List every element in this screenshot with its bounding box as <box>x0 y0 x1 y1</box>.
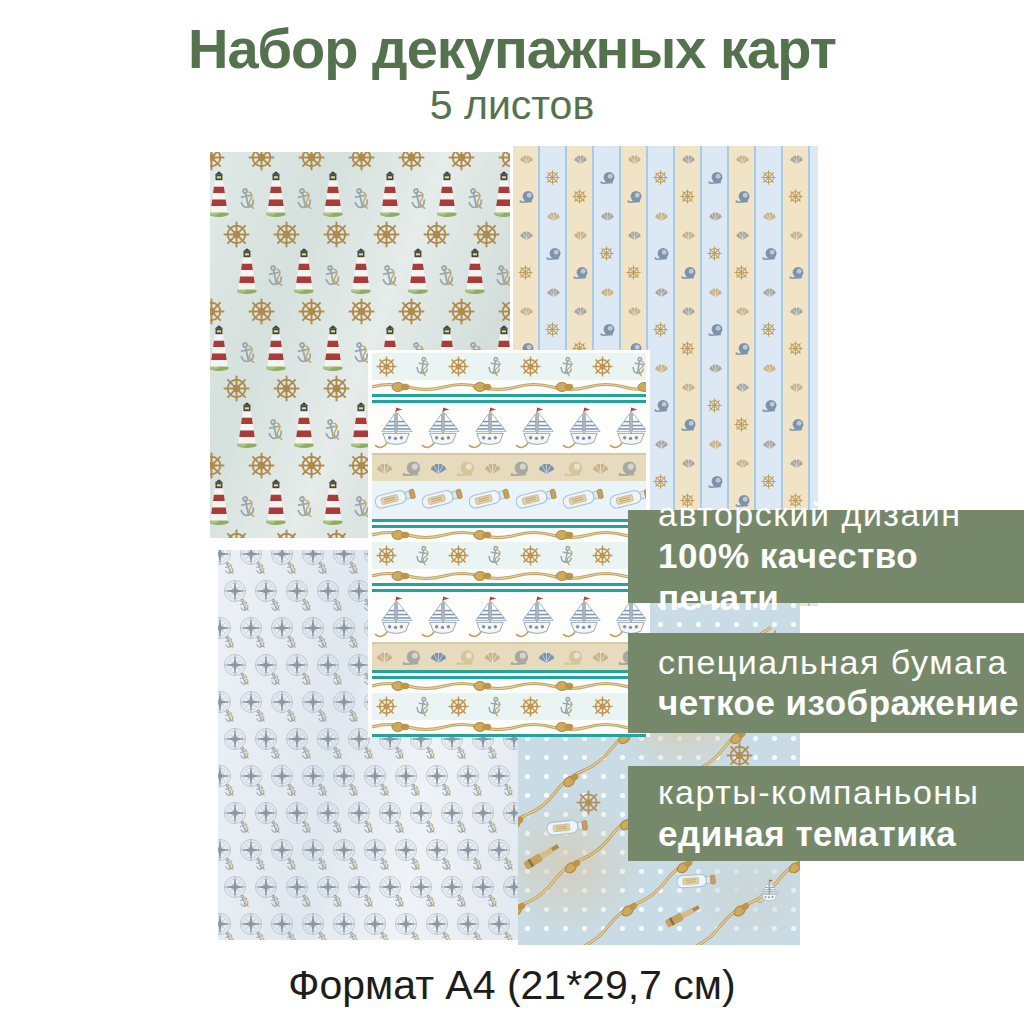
sailboat-icon <box>561 405 606 450</box>
anchor-icon <box>252 782 268 801</box>
ship-wheel-icon <box>373 221 400 248</box>
ship-wheel-icon <box>788 341 803 356</box>
ship-wheel-icon <box>273 221 300 248</box>
seashell-icon <box>761 360 778 374</box>
page-subtitle: 5 листов <box>0 82 1024 129</box>
lighthouse-icon <box>210 171 234 217</box>
anchor-icon <box>314 560 330 579</box>
anchor-icon <box>391 893 407 912</box>
ship-wheel-icon <box>761 170 776 185</box>
ship-wheel-icon <box>323 375 350 402</box>
anchor-icon <box>500 856 516 875</box>
ship-wheel-icon <box>273 529 300 538</box>
ship-wheel-icon <box>788 189 803 204</box>
pattern-band <box>372 481 646 519</box>
product-promo-image: Набор декупажных карт 5 листов <box>0 0 1024 1021</box>
bottle-icon <box>560 484 605 512</box>
lighthouse-icon <box>210 325 234 371</box>
bottle-icon <box>607 484 646 512</box>
seashell-icon <box>653 246 670 260</box>
ship-wheel-icon <box>545 322 560 337</box>
anchor-icon <box>221 856 237 875</box>
anchor-icon <box>263 262 288 292</box>
anchor-icon <box>407 782 423 801</box>
ship-wheel-icon <box>592 696 613 717</box>
anchor-icon <box>345 634 361 653</box>
anchor-icon <box>329 745 345 764</box>
anchor-icon <box>329 819 345 838</box>
seashell-icon <box>680 151 697 165</box>
ship-wheel-icon <box>726 742 753 769</box>
pattern-band <box>372 528 646 542</box>
seashell-icon <box>788 151 805 165</box>
anchor-icon <box>298 819 314 838</box>
ship-wheel-icon <box>448 696 469 717</box>
anchor-icon <box>252 560 268 579</box>
seashell-icon <box>707 474 724 488</box>
anchor-icon <box>314 782 330 801</box>
seashell-icon <box>788 417 805 431</box>
seashell-icon <box>455 648 476 665</box>
pattern-band <box>372 519 646 528</box>
pattern-band <box>372 583 646 592</box>
ship-wheel-icon <box>680 341 695 356</box>
seashell-icon <box>626 151 643 165</box>
anchor-icon <box>283 634 299 653</box>
feature-badge-companion: карты-компаньоны единая тематика <box>628 766 1024 861</box>
anchor-icon <box>556 355 577 380</box>
seashell-icon <box>734 189 751 203</box>
seashell-icon <box>572 151 589 165</box>
anchor-icon <box>406 185 431 215</box>
ship-wheel-icon <box>520 696 541 717</box>
anchor-icon <box>283 560 299 579</box>
ship-wheel-icon <box>298 452 325 479</box>
seashell-icon <box>599 208 616 222</box>
anchor-icon <box>391 819 407 838</box>
anchor-icon <box>252 708 268 727</box>
seashell-icon <box>545 246 562 260</box>
anchor-icon <box>438 782 454 801</box>
lighthouse-icon <box>318 325 348 371</box>
ship-wheel-icon <box>298 152 325 171</box>
anchor-icon <box>377 262 402 292</box>
anchor-icon <box>329 893 345 912</box>
anchor-icon <box>267 819 283 838</box>
seashell-icon <box>482 647 503 664</box>
ship-wheel-icon <box>761 474 776 489</box>
sailboat-icon <box>420 405 465 450</box>
pattern-band <box>372 542 646 569</box>
lighthouse-icon <box>289 402 319 448</box>
seashell-icon <box>518 189 535 203</box>
badge-line-bold: единая тематика <box>658 813 1024 855</box>
seashell-icon <box>401 648 422 665</box>
lighthouse-icon <box>261 325 291 371</box>
anchor-icon <box>252 634 268 653</box>
rope-icon <box>372 569 646 583</box>
seashell-icon <box>761 246 778 260</box>
anchor-icon <box>345 560 361 579</box>
ship-wheel-icon <box>376 545 397 566</box>
lighthouse-icon <box>261 171 291 217</box>
seashell-icon <box>761 208 778 222</box>
ship-wheel-icon <box>210 298 225 325</box>
badge-line: авторский дизайн <box>658 494 1024 535</box>
ship-wheel-icon <box>348 298 375 325</box>
anchor-icon <box>484 745 500 764</box>
anchor-icon <box>345 708 361 727</box>
seashell-icon <box>761 398 778 412</box>
pattern-band <box>372 734 646 737</box>
anchor-icon <box>236 671 252 690</box>
anchor-icon <box>252 856 268 875</box>
seashell-icon <box>518 303 535 317</box>
anchor-icon <box>422 819 438 838</box>
anchor-icon <box>491 262 510 292</box>
anchor-icon <box>453 893 469 912</box>
seashell-icon <box>626 189 643 203</box>
seashell-icon <box>680 455 697 469</box>
anchor-icon <box>469 856 485 875</box>
anchor-icon <box>422 893 438 912</box>
badge-line-bold: 100% качество печати <box>658 535 1024 619</box>
pattern-band <box>372 670 646 679</box>
ship-wheel-icon <box>298 298 325 325</box>
ship-wheel-icon <box>248 298 275 325</box>
ship-wheel-icon <box>734 265 749 280</box>
anchor-icon <box>412 355 433 380</box>
sailboat-icon <box>561 594 606 639</box>
anchor-icon <box>484 695 505 720</box>
ship-wheel-icon <box>473 221 500 248</box>
seashell-icon <box>482 458 503 475</box>
seashell-icon <box>572 265 589 279</box>
ship-wheel-icon <box>498 298 510 325</box>
ship-wheel-icon <box>545 170 560 185</box>
ship-wheel-icon <box>626 265 641 280</box>
anchor-icon <box>314 708 330 727</box>
anchor-icon <box>484 893 500 912</box>
ship-wheel-icon <box>398 298 425 325</box>
ship-wheel-icon <box>599 246 614 261</box>
seashell-icon <box>788 227 805 241</box>
ship-wheel-icon <box>323 221 350 248</box>
seashell-icon <box>734 379 751 393</box>
seashell-icon <box>680 303 697 317</box>
anchor-icon <box>469 782 485 801</box>
pattern-band <box>372 592 646 642</box>
ship-wheel-icon <box>592 545 613 566</box>
ship-wheel-icon <box>680 189 695 204</box>
ship-wheel-icon <box>518 265 533 280</box>
anchor-icon <box>407 856 423 875</box>
lighthouse-icon <box>289 248 319 294</box>
ship-wheel-icon <box>348 152 375 171</box>
pattern-band <box>372 380 646 394</box>
rope-icon <box>372 720 646 734</box>
seashell-icon <box>428 647 449 664</box>
anchor-icon <box>235 185 260 215</box>
ship-wheel-icon <box>520 545 541 566</box>
ship-wheel-icon <box>761 322 776 337</box>
ship-wheel-icon <box>653 170 668 185</box>
seashell-icon <box>518 151 535 165</box>
seashell-icon <box>590 458 611 475</box>
seashell-icon <box>734 303 751 317</box>
badge-line: специальная бумага <box>658 642 1024 683</box>
pattern-band <box>372 353 646 380</box>
seashell-icon <box>680 227 697 241</box>
seashell-icon <box>545 284 562 298</box>
anchor-icon <box>628 355 646 380</box>
anchor-icon <box>345 856 361 875</box>
anchor-icon <box>298 597 314 616</box>
anchor-icon <box>345 782 361 801</box>
ship-wheel-icon <box>376 696 397 717</box>
bottle-icon <box>513 484 558 512</box>
ship-wheel-icon <box>210 152 225 171</box>
rope-icon <box>372 528 646 542</box>
seashell-icon <box>572 303 589 317</box>
seashell-icon <box>626 227 643 241</box>
seashell-icon <box>563 648 584 665</box>
anchor-icon <box>292 493 317 523</box>
anchor-icon <box>235 493 260 523</box>
anchor-icon <box>320 262 345 292</box>
lighthouse-icon <box>318 479 348 525</box>
seashell-icon <box>536 647 557 664</box>
anchor-icon <box>556 695 577 720</box>
seashell-icon <box>707 322 724 336</box>
anchor-icon <box>438 856 454 875</box>
anchor-icon <box>453 745 469 764</box>
anchor-icon <box>298 745 314 764</box>
seashell-icon <box>617 459 638 476</box>
format-caption: Формат А4 (21*29,7 см) <box>0 962 1024 1009</box>
pattern-band <box>372 403 646 453</box>
anchor-icon <box>463 185 488 215</box>
lighthouse-icon <box>489 171 510 217</box>
seashell-icon <box>653 398 670 412</box>
anchor-icon <box>484 544 505 569</box>
lighthouse-icon <box>403 248 433 294</box>
anchor-icon <box>267 745 283 764</box>
seashell-icon <box>653 208 670 222</box>
ship-wheel-icon <box>448 298 475 325</box>
seashell-icon <box>599 322 616 336</box>
seashell-icon <box>734 341 751 355</box>
anchor-icon <box>453 819 469 838</box>
ship-wheel-icon <box>707 398 722 413</box>
ship-wheel-icon <box>423 221 450 248</box>
seashell-icon <box>680 417 697 431</box>
ship-wheel-icon <box>248 152 275 171</box>
anchor-icon <box>221 634 237 653</box>
sheet-nautical-borders <box>368 350 650 737</box>
seashell-icon <box>788 379 805 393</box>
lighthouse-icon <box>346 248 376 294</box>
anchor-icon <box>314 634 330 653</box>
feature-badge-paper: специальная бумага четкое изображение <box>628 633 1024 733</box>
anchor-icon <box>283 856 299 875</box>
seashell-icon <box>707 360 724 374</box>
ship-wheel-icon <box>653 474 668 489</box>
ship-wheel-icon <box>592 356 613 377</box>
lighthouse-icon <box>375 171 405 217</box>
anchor-icon <box>434 262 459 292</box>
ship-wheel-icon <box>248 452 275 479</box>
seashell-icon <box>653 360 670 374</box>
bottle-icon <box>419 484 464 512</box>
anchor-icon <box>376 856 392 875</box>
anchor-icon <box>314 856 330 875</box>
anchor-icon <box>360 819 376 838</box>
ship-wheel-icon <box>398 152 425 171</box>
ship-wheel-icon <box>273 375 300 402</box>
anchor-icon <box>292 185 317 215</box>
ship-wheel-icon <box>707 246 722 261</box>
seashell-icon <box>572 227 589 241</box>
seashell-icon <box>734 455 751 469</box>
seashell-icon <box>707 436 724 450</box>
ship-wheel-icon <box>498 152 510 171</box>
anchor-icon <box>292 339 317 369</box>
anchor-icon <box>236 745 252 764</box>
lighthouse-icon <box>232 402 262 448</box>
anchor-icon <box>556 544 577 569</box>
anchor-icon <box>349 185 374 215</box>
seashell-icon <box>734 151 751 165</box>
ship-wheel-icon <box>572 189 587 204</box>
lighthouse-icon <box>432 171 462 217</box>
ship-wheel-icon <box>210 452 225 479</box>
lighthouse-icon <box>318 171 348 217</box>
seashell-icon <box>518 227 535 241</box>
seashell-icon <box>680 265 697 279</box>
pattern-band <box>372 569 646 583</box>
sailboat-icon <box>514 594 559 639</box>
seashell-icon <box>401 459 422 476</box>
ship-wheel-icon <box>376 356 397 377</box>
anchor-icon <box>329 597 345 616</box>
anchor-icon <box>267 671 283 690</box>
anchor-icon <box>236 893 252 912</box>
seashell-icon <box>761 436 778 450</box>
ship-wheel-icon <box>653 322 668 337</box>
seashell-icon <box>374 458 395 475</box>
page-title: Набор декупажных карт <box>0 16 1024 81</box>
anchor-icon <box>298 893 314 912</box>
badge-line: карты-компаньоны <box>658 772 1024 813</box>
lighthouse-icon <box>460 248 490 294</box>
anchor-icon <box>412 544 433 569</box>
seashell-icon <box>545 208 562 222</box>
seashell-icon <box>788 265 805 279</box>
sailboat-icon <box>756 878 782 904</box>
anchor-icon <box>422 745 438 764</box>
ship-wheel-icon <box>576 790 601 815</box>
anchor-icon <box>221 708 237 727</box>
seashell-icon <box>509 648 530 665</box>
sailboat-icon <box>420 594 465 639</box>
ship-wheel-icon <box>223 529 250 538</box>
anchor-icon <box>221 560 237 579</box>
seashell-icon <box>599 284 616 298</box>
anchor-icon <box>236 597 252 616</box>
anchor-icon <box>391 745 407 764</box>
seashell-icon <box>761 284 778 298</box>
ship-wheel-icon <box>448 545 469 566</box>
seashell-icon <box>509 459 530 476</box>
pattern-band <box>372 693 646 720</box>
ship-wheel-icon <box>520 356 541 377</box>
anchor-icon <box>412 695 433 720</box>
seashell-icon <box>428 458 449 475</box>
sailboat-icon <box>373 594 418 639</box>
seashell-icon <box>626 303 643 317</box>
sailboat-icon <box>514 405 559 450</box>
anchor-icon <box>221 782 237 801</box>
anchor-icon <box>267 893 283 912</box>
seashell-icon <box>680 379 697 393</box>
sailboat-icon <box>608 405 646 450</box>
seashell-icon <box>653 436 670 450</box>
seashell-icon <box>590 647 611 664</box>
seashell-icon <box>455 459 476 476</box>
seashell-icon <box>707 170 724 184</box>
anchor-icon <box>320 416 345 446</box>
pattern-band <box>372 679 646 693</box>
seashell-icon <box>536 458 557 475</box>
rope-icon <box>372 380 646 394</box>
lighthouse-icon <box>261 479 291 525</box>
ship-wheel-icon <box>734 417 749 432</box>
anchor-icon <box>236 819 252 838</box>
anchor-icon <box>235 339 260 369</box>
anchor-icon <box>329 671 345 690</box>
lighthouse-icon <box>210 479 234 525</box>
bottle-icon <box>466 484 511 512</box>
bottle-icon <box>372 484 417 512</box>
anchor-icon <box>267 597 283 616</box>
pattern-band <box>372 394 646 403</box>
anchor-icon <box>283 782 299 801</box>
seashell-icon <box>707 284 724 298</box>
seashell-icon <box>707 208 724 222</box>
feature-badge-design: авторский дизайн 100% качество печати <box>628 510 1024 603</box>
seashell-icon <box>788 455 805 469</box>
anchor-icon <box>263 416 288 446</box>
ship-wheel-icon <box>223 375 250 402</box>
pattern-band <box>372 720 646 734</box>
seashell-icon <box>374 647 395 664</box>
sailboat-icon <box>467 405 512 450</box>
anchor-icon <box>484 819 500 838</box>
badge-line-bold: четкое изображение <box>658 682 1024 724</box>
anchor-icon <box>500 782 516 801</box>
anchor-icon <box>283 708 299 727</box>
seashell-icon <box>599 170 616 184</box>
ship-wheel-icon <box>448 152 475 171</box>
bottle-icon <box>675 871 716 891</box>
rope-icon <box>372 679 646 693</box>
ship-wheel-icon <box>448 356 469 377</box>
ship-wheel-icon <box>323 529 350 538</box>
anchor-icon <box>484 355 505 380</box>
anchor-icon <box>298 671 314 690</box>
sailboat-icon <box>467 594 512 639</box>
